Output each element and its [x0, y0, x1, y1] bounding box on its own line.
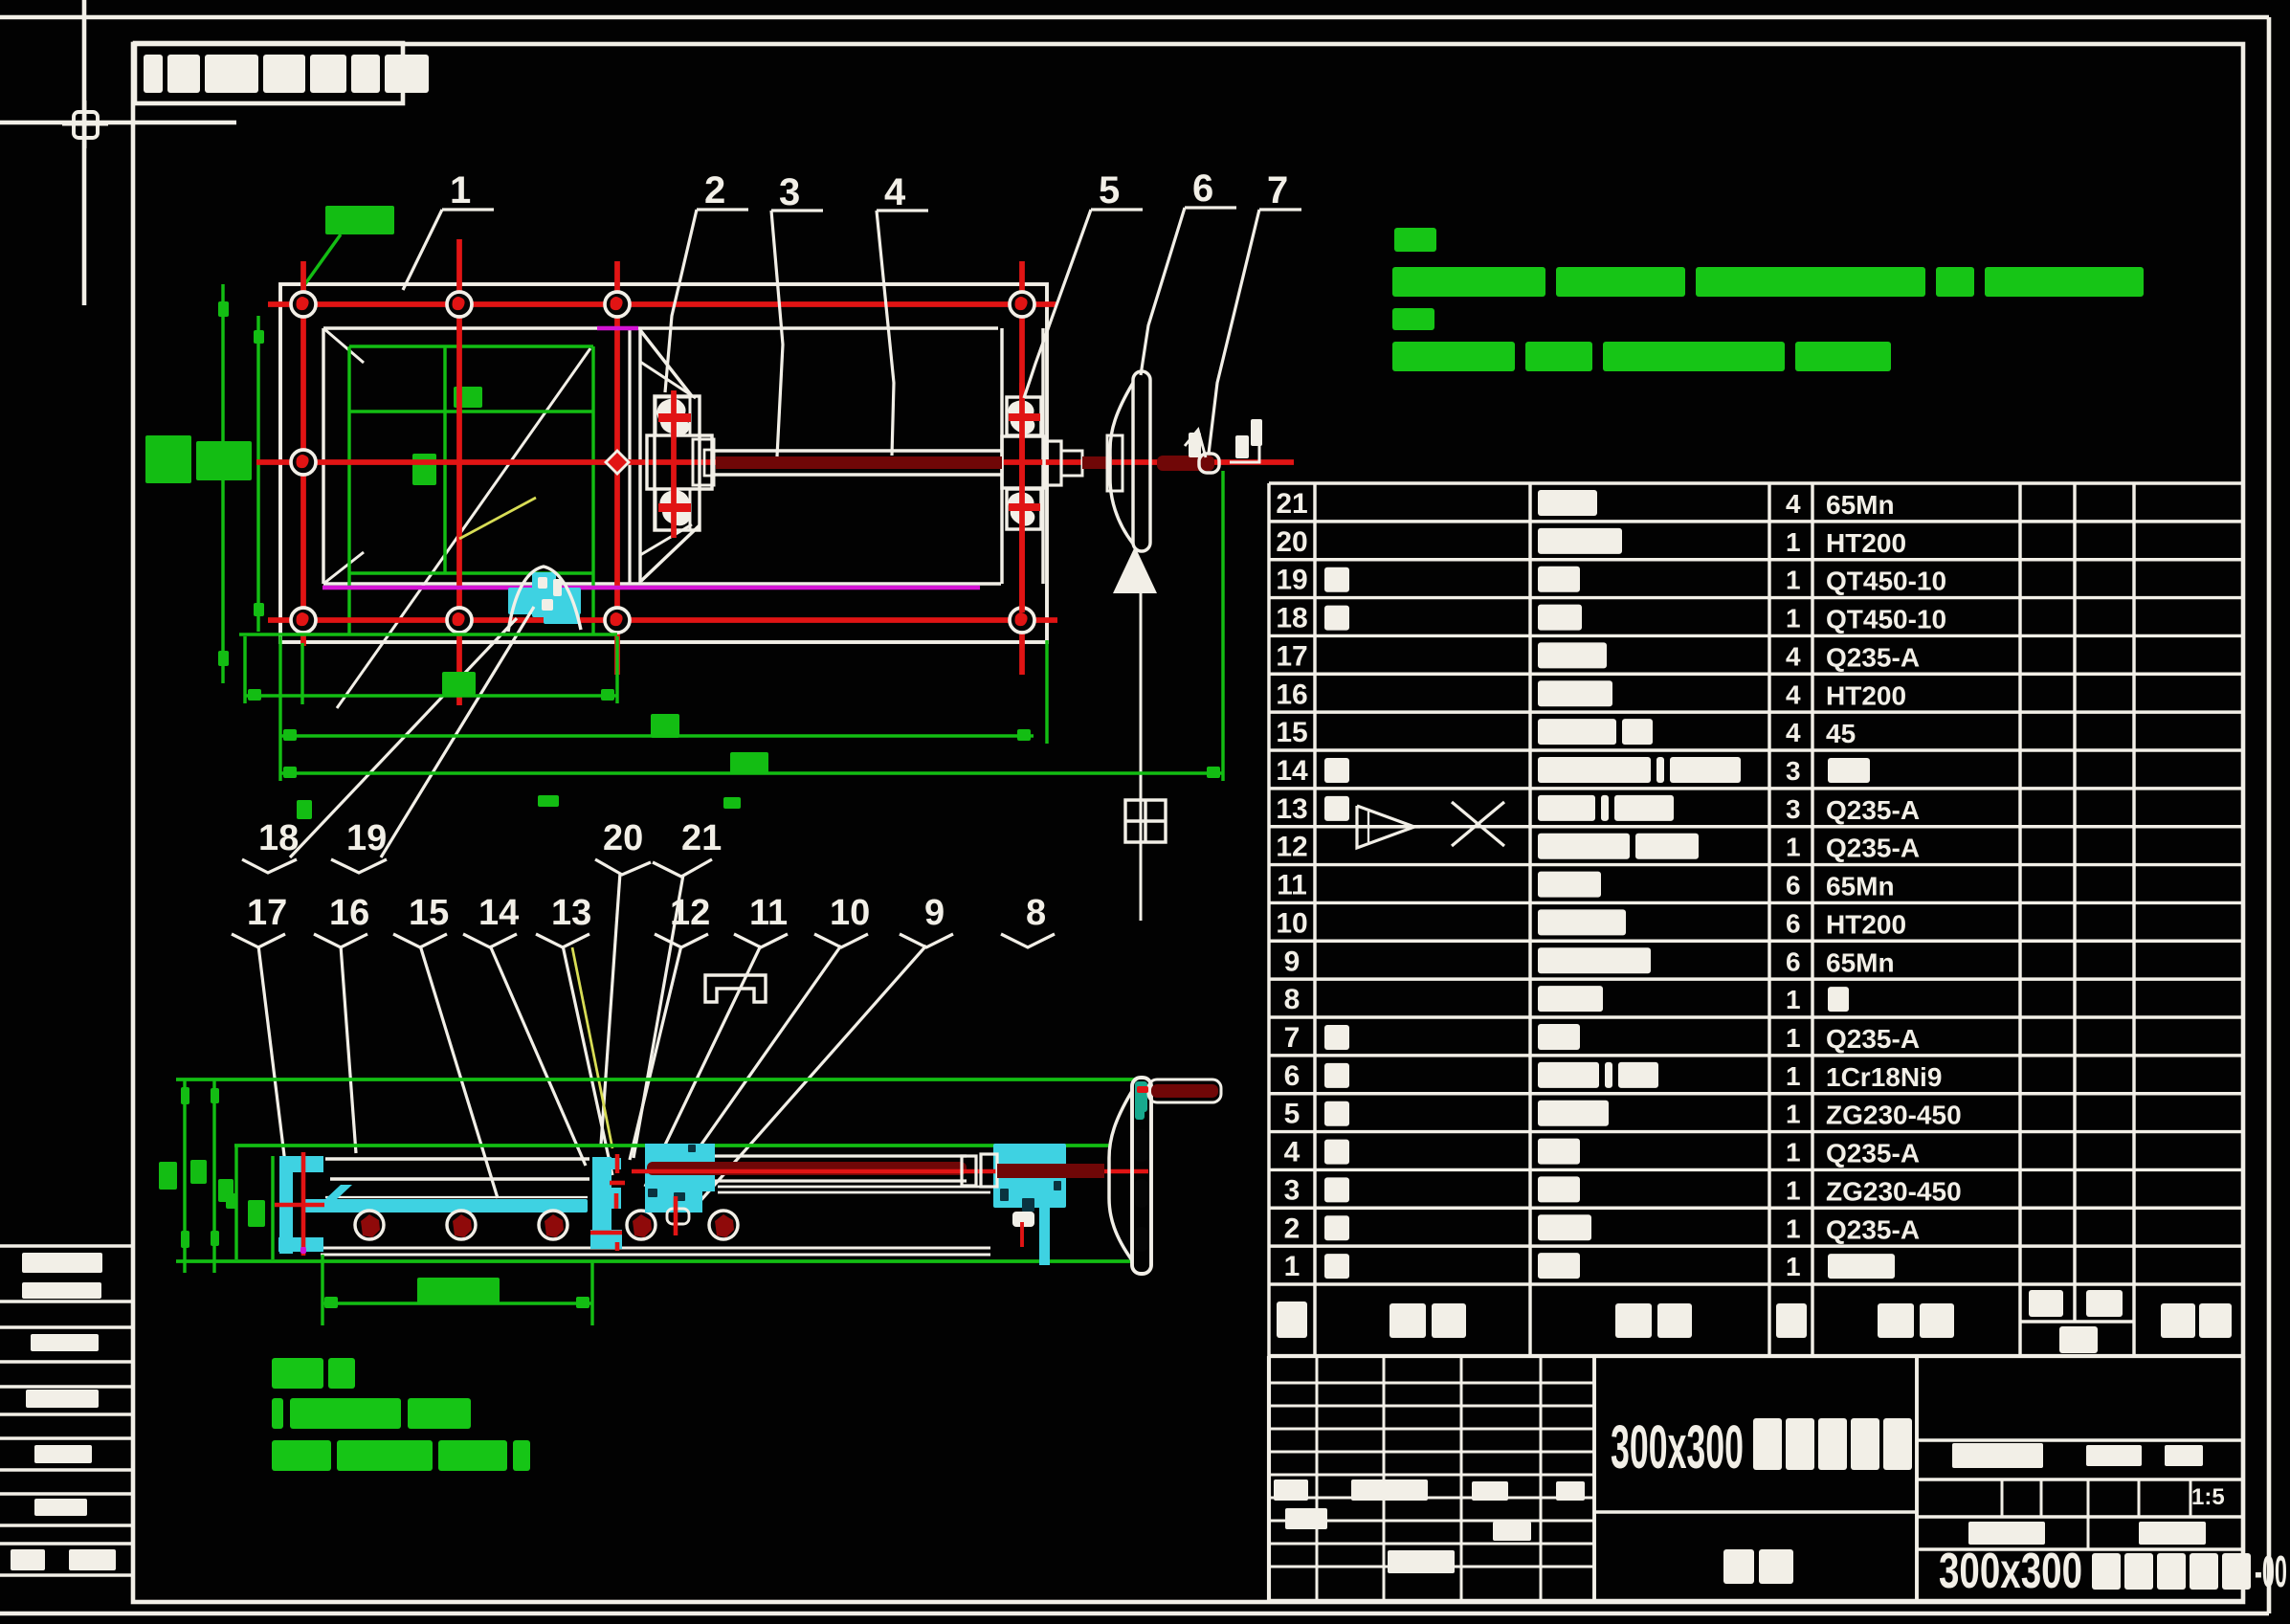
svg-text:ZG230-450: ZG230-450	[1826, 1176, 1962, 1206]
svg-text:9: 9	[1284, 945, 1301, 977]
svg-text:19: 19	[1276, 565, 1307, 596]
svg-text:12: 12	[670, 893, 710, 933]
svg-text:15: 15	[1276, 717, 1307, 748]
svg-text:QT450-10: QT450-10	[1826, 605, 1946, 634]
svg-text:1: 1	[1786, 527, 1801, 557]
svg-text:45: 45	[1826, 719, 1856, 748]
svg-text:6: 6	[1786, 946, 1801, 976]
svg-text:11: 11	[749, 893, 788, 933]
svg-text:4: 4	[1786, 718, 1801, 747]
svg-text:QT450-10: QT450-10	[1826, 567, 1946, 596]
svg-text:7: 7	[1284, 1022, 1301, 1054]
svg-text:21: 21	[1276, 488, 1307, 520]
svg-text:4: 4	[1786, 641, 1801, 671]
svg-text:6: 6	[1192, 167, 1213, 210]
svg-text:1: 1	[1786, 1100, 1801, 1129]
svg-text:1: 1	[1786, 604, 1801, 634]
svg-text:4: 4	[884, 171, 906, 213]
svg-text:7: 7	[1267, 169, 1288, 211]
svg-text:Q235-A: Q235-A	[1826, 1214, 1920, 1244]
svg-text:1: 1	[450, 169, 471, 211]
svg-text:1: 1	[1786, 1138, 1801, 1168]
svg-text:1: 1	[1786, 985, 1801, 1014]
svg-text:15: 15	[409, 893, 449, 933]
svg-text:6: 6	[1786, 908, 1801, 938]
svg-text:10: 10	[830, 893, 870, 933]
svg-text:1: 1	[1786, 1175, 1801, 1205]
svg-text:14: 14	[1276, 755, 1308, 787]
svg-text:20: 20	[603, 818, 643, 858]
svg-text:1: 1	[1284, 1251, 1301, 1282]
svg-text:65Mn: 65Mn	[1826, 490, 1895, 520]
svg-text:1: 1	[1786, 1023, 1801, 1053]
svg-text:1: 1	[1786, 1061, 1801, 1091]
svg-text:21: 21	[681, 818, 722, 858]
svg-text:Q235-A: Q235-A	[1826, 642, 1920, 672]
svg-text:3: 3	[1786, 794, 1801, 824]
svg-text:18: 18	[1276, 603, 1307, 634]
svg-text:4: 4	[1284, 1137, 1301, 1168]
svg-text:2: 2	[1284, 1212, 1301, 1244]
svg-text:4: 4	[1786, 489, 1801, 519]
svg-text:3: 3	[779, 171, 800, 213]
svg-text:-00: -00	[2255, 1546, 2287, 1596]
svg-text:20: 20	[1276, 526, 1307, 558]
svg-text:19: 19	[346, 818, 387, 858]
svg-text:65Mn: 65Mn	[1826, 947, 1895, 977]
svg-text:Q235-A: Q235-A	[1826, 834, 1920, 863]
svg-text:3: 3	[1284, 1174, 1301, 1206]
svg-text:3: 3	[1786, 756, 1801, 786]
svg-text:5: 5	[1284, 1099, 1301, 1130]
svg-text:6: 6	[1786, 871, 1801, 901]
svg-text:300x300: 300x300	[1939, 1544, 2082, 1599]
svg-text:Q235-A: Q235-A	[1826, 1024, 1920, 1054]
svg-text:1: 1	[1786, 566, 1801, 595]
svg-text:8: 8	[1284, 984, 1301, 1015]
svg-text:Q235-A: Q235-A	[1826, 795, 1920, 825]
svg-text:ZG230-450: ZG230-450	[1826, 1101, 1962, 1130]
svg-text:1:5: 1:5	[2191, 1484, 2225, 1510]
svg-text:1: 1	[1786, 1213, 1801, 1243]
svg-text:Q235-A: Q235-A	[1826, 1139, 1920, 1168]
svg-text:16: 16	[1276, 679, 1307, 710]
svg-text:14: 14	[478, 893, 519, 933]
svg-text:65Mn: 65Mn	[1826, 872, 1895, 901]
svg-text:13: 13	[551, 893, 591, 933]
svg-text:12: 12	[1276, 832, 1307, 863]
svg-text:10: 10	[1276, 907, 1307, 939]
svg-text:2: 2	[704, 169, 725, 211]
svg-text:6: 6	[1284, 1060, 1301, 1092]
svg-text:1: 1	[1786, 1252, 1801, 1281]
svg-text:HT200: HT200	[1826, 909, 1906, 939]
svg-text:HT200: HT200	[1826, 528, 1906, 558]
svg-text:4: 4	[1786, 679, 1801, 709]
svg-text:11: 11	[1277, 870, 1307, 901]
svg-text:8: 8	[1026, 893, 1046, 933]
svg-text:5: 5	[1099, 169, 1120, 211]
svg-text:9: 9	[924, 893, 945, 933]
svg-text:HT200: HT200	[1826, 680, 1906, 710]
svg-text:16: 16	[329, 893, 369, 933]
svg-text:17: 17	[247, 893, 287, 933]
svg-text:300x300: 300x300	[1611, 1413, 1744, 1481]
svg-text:1: 1	[1786, 833, 1801, 862]
svg-text:13: 13	[1276, 793, 1307, 825]
svg-text:1Cr18Ni9: 1Cr18Ni9	[1826, 1062, 1942, 1092]
svg-text:17: 17	[1276, 640, 1307, 672]
